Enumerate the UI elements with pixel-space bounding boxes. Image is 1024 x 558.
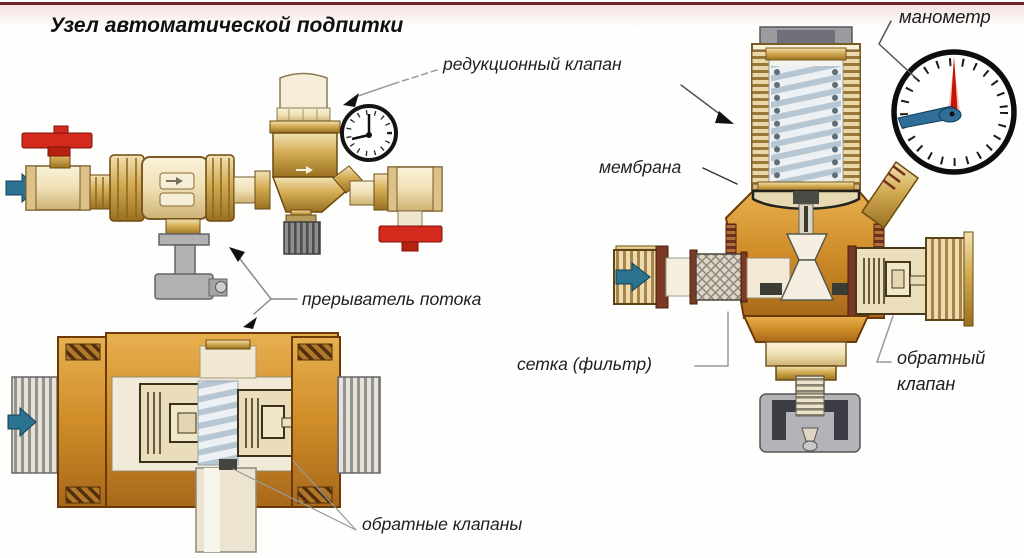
adjuster-knob-small bbox=[284, 222, 320, 254]
label-check-valve: обратный клапан bbox=[897, 345, 1024, 397]
label-reduction-valve: редукционный клапан bbox=[443, 54, 622, 76]
valve-diagram-graphics bbox=[0, 0, 1024, 558]
drain-tube bbox=[196, 459, 256, 552]
red-valve-handle-icon bbox=[22, 126, 92, 156]
label-mesh-filter: сетка (фильтр) bbox=[517, 354, 652, 376]
flow-interrupter-assembled bbox=[110, 155, 234, 235]
pressure-reducer-assembled bbox=[270, 74, 362, 255]
red-valve-handle-icon bbox=[379, 226, 442, 251]
filter-mesh bbox=[696, 254, 742, 300]
assembled-unit-figure bbox=[6, 74, 442, 300]
gauge-branch-pipe bbox=[862, 162, 918, 228]
ball-valve-left bbox=[22, 126, 92, 210]
label-check-valves: обратные клапаны bbox=[362, 514, 522, 536]
inlet-with-filter bbox=[614, 246, 747, 308]
label-membrane: мембрана bbox=[599, 157, 681, 179]
bottom-adjuster bbox=[744, 316, 868, 452]
outlet-threads bbox=[926, 232, 973, 326]
check-valve-cartridge bbox=[848, 246, 928, 316]
flow-interrupter-cutaway-figure bbox=[8, 333, 380, 552]
pressure-gauge-small bbox=[342, 106, 396, 160]
arrowhead-icon bbox=[343, 93, 359, 107]
arrowhead-icon bbox=[243, 317, 257, 329]
pressure-gauge-large bbox=[894, 52, 1014, 172]
label-flow-interrupter: прерыватель потока bbox=[302, 289, 481, 311]
arrowhead-icon bbox=[229, 247, 245, 262]
diagram-canvas: Узел автоматической подпитки редукционны… bbox=[0, 0, 1024, 558]
main-spring bbox=[771, 66, 841, 182]
ball-valve-right bbox=[379, 167, 442, 251]
spring-bonnet bbox=[752, 27, 860, 190]
center-spring bbox=[198, 381, 238, 465]
drain-funnel bbox=[155, 234, 227, 299]
label-manometer: манометр bbox=[899, 5, 991, 28]
page-title: Узел автоматической подпитки bbox=[50, 14, 403, 38]
